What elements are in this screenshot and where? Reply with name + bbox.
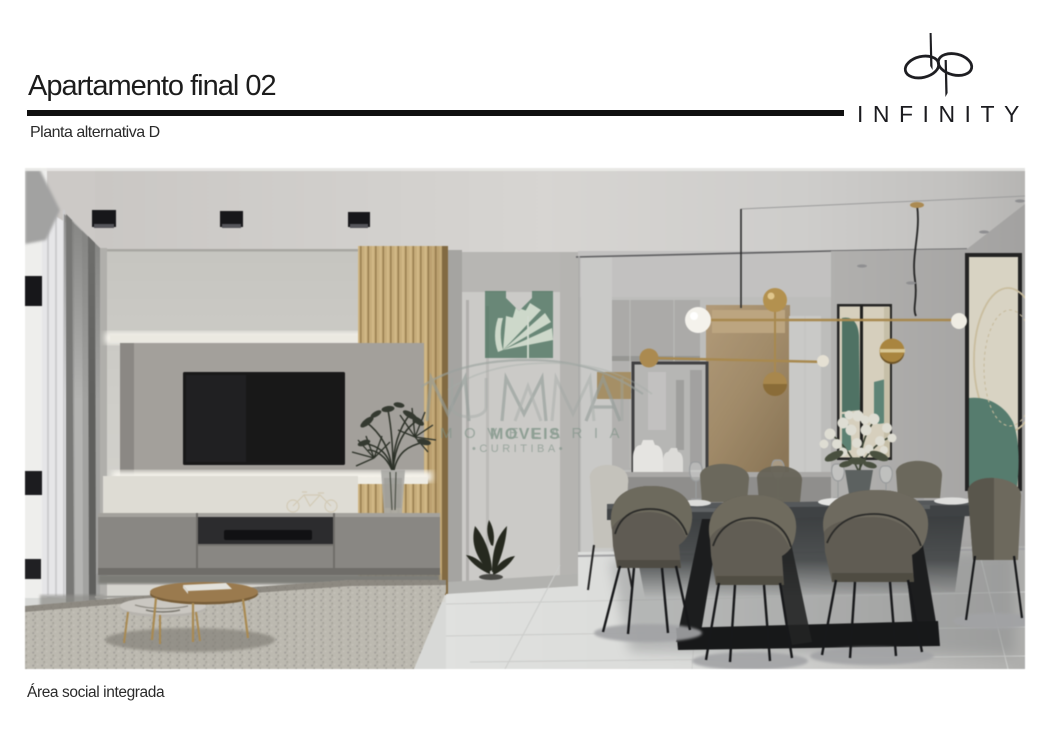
svg-text:•CURITIBA•: •CURITIBA•	[472, 443, 566, 455]
svg-text:MOVEIS: MOVEIS	[490, 426, 561, 443]
